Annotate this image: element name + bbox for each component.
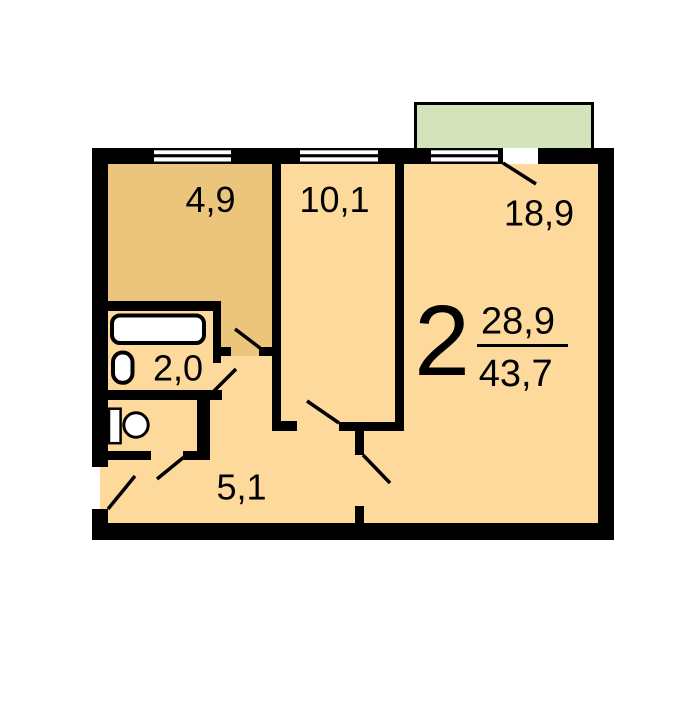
svg-text:5,1: 5,1 [216,467,266,508]
svg-text:28,9: 28,9 [481,301,555,343]
svg-text:2: 2 [414,285,470,397]
svg-text:4,9: 4,9 [185,179,235,220]
svg-text:43,7: 43,7 [479,353,553,395]
svg-text:10,1: 10,1 [299,179,369,220]
svg-text:2,0: 2,0 [153,348,203,389]
svg-text:18,9: 18,9 [504,193,574,234]
